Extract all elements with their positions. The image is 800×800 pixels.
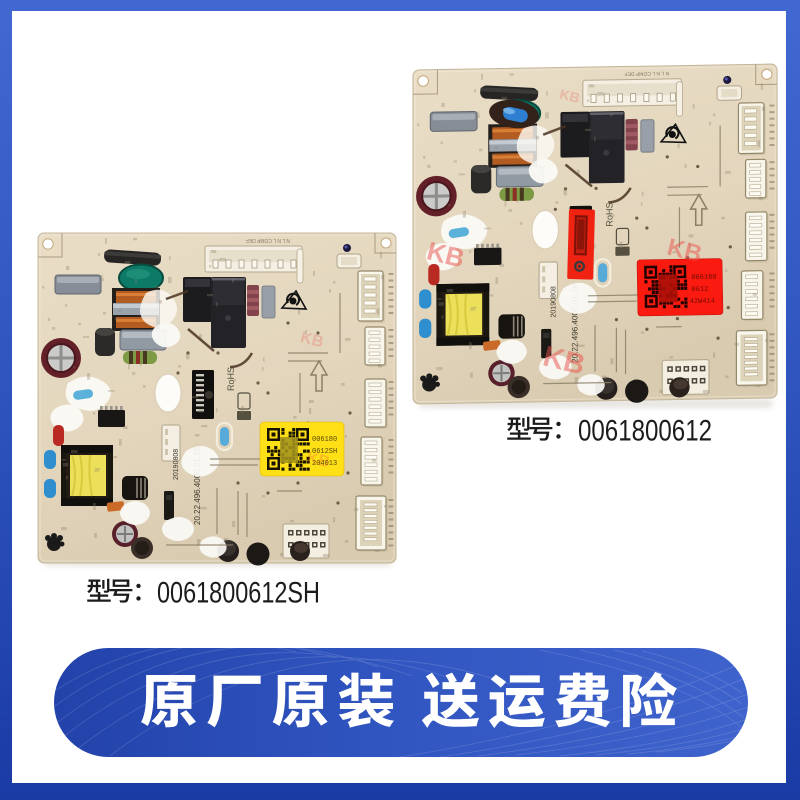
- svg-text:42W414: 42W414: [690, 298, 715, 306]
- svg-text:006180: 006180: [691, 274, 716, 282]
- svg-text:006180: 006180: [312, 436, 337, 444]
- svg-text:0612: 0612: [691, 286, 708, 294]
- svg-text:0061800612: 0061800612: [578, 415, 712, 448]
- svg-text:0061800612SH: 0061800612SH: [157, 577, 320, 610]
